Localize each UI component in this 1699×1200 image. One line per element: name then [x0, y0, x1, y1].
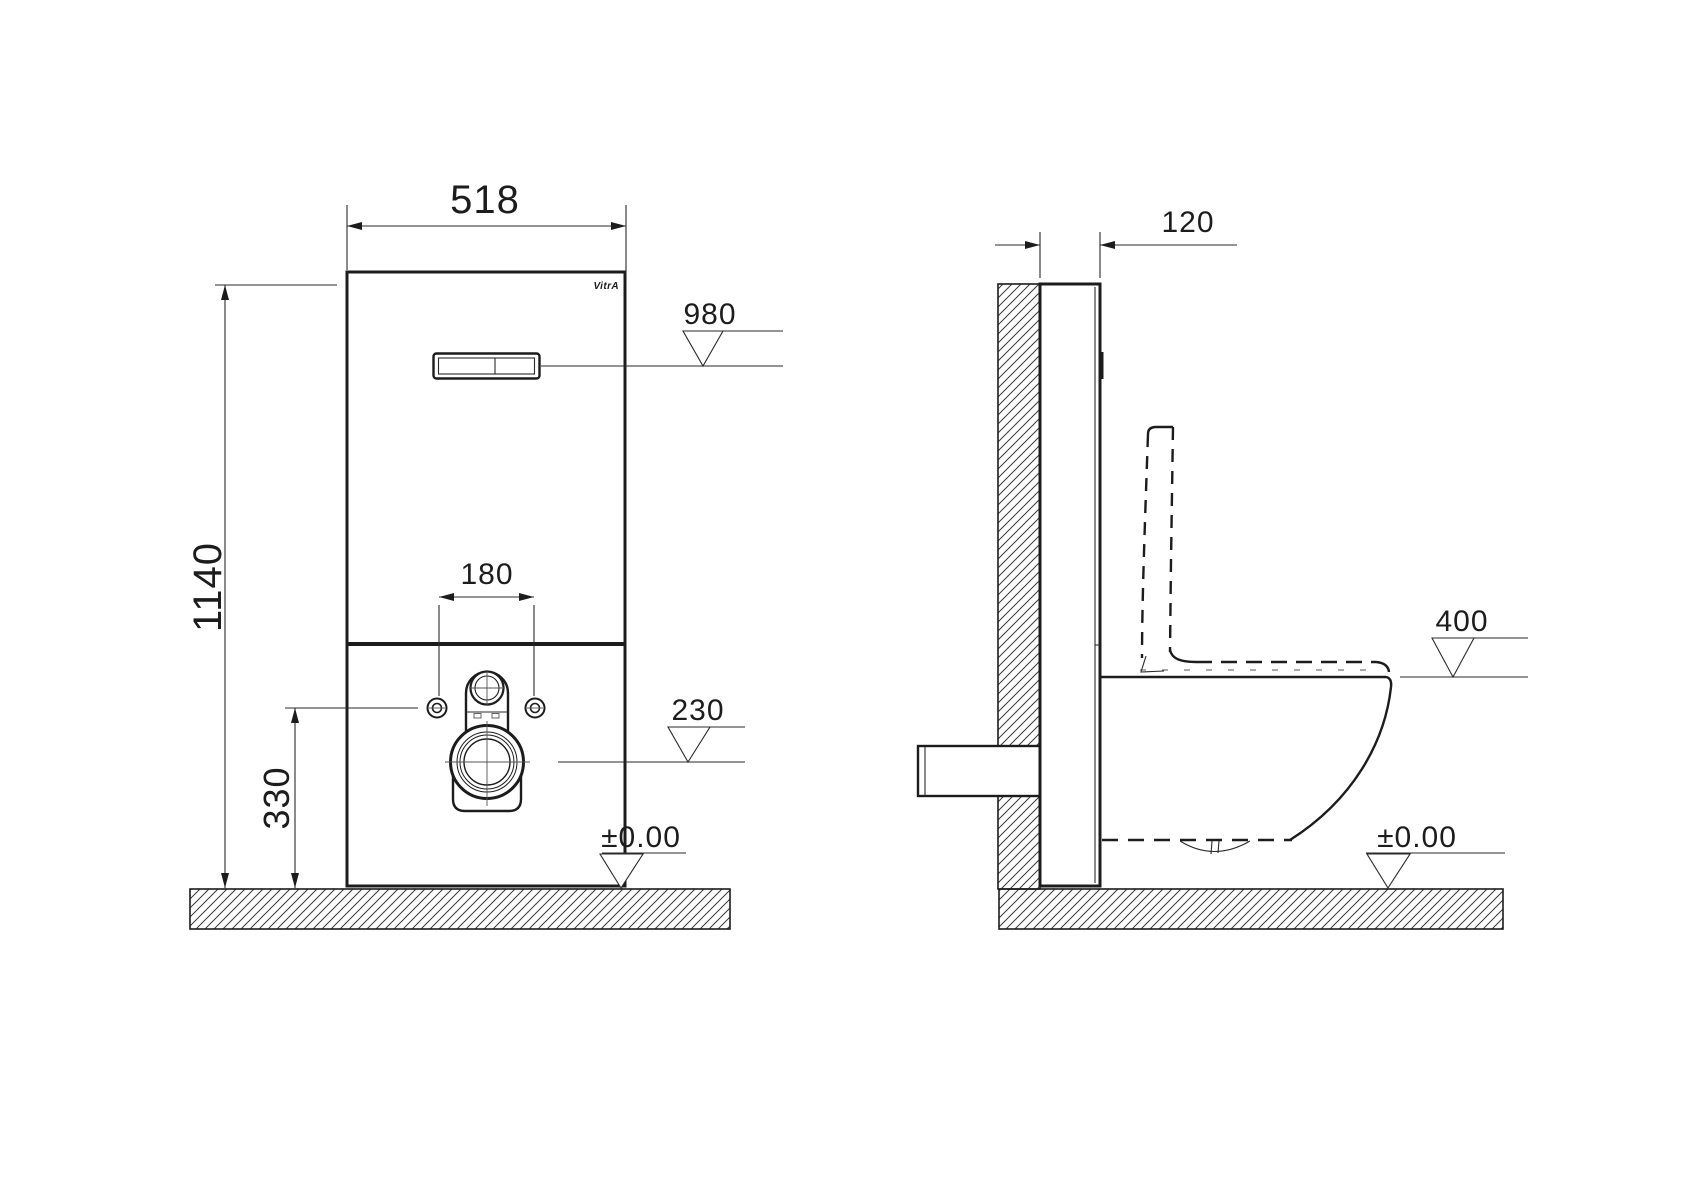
- trap-outline-arc: [1180, 841, 1250, 852]
- lid-top-edge: [1148, 427, 1173, 434]
- level-marker-zero-side: ±0.00: [1366, 821, 1505, 888]
- side-floor-level-label: ±0.00: [1377, 821, 1457, 854]
- mounting-bolt-right: [526, 699, 545, 718]
- front-floor: [190, 889, 730, 929]
- front-height-label: 1140: [186, 542, 230, 632]
- dim-module-depth: 120: [995, 206, 1237, 278]
- wall-section: [998, 284, 1040, 889]
- flush-plate: [434, 354, 540, 379]
- module-body: [1040, 284, 1100, 886]
- brand-logo: VitrA: [593, 281, 619, 292]
- side-view: 120 400 ±0.00: [918, 206, 1528, 929]
- bowl-rim-line: [1100, 677, 1391, 687]
- level-marker-400: 400: [1400, 605, 1528, 677]
- technical-drawing-page: VitrA: [0, 0, 1699, 1200]
- mounting-bolt-left: [428, 699, 447, 718]
- lid-front-hidden-line: [1170, 427, 1173, 652]
- bolt-height-label: 330: [256, 766, 297, 829]
- front-floor-hatch: [190, 889, 730, 929]
- module-depth-label: 120: [1161, 206, 1214, 239]
- bolt-spacing-label: 180: [460, 558, 513, 591]
- front-view: VitrA: [186, 178, 783, 929]
- front-floor-level-label: ±0.00: [601, 821, 681, 854]
- seat-front-edge: [1376, 662, 1389, 672]
- module-side-profile: [1040, 284, 1104, 886]
- toilet-bowl-profile: [1100, 427, 1391, 854]
- dim-front-width: 518: [347, 178, 626, 278]
- flush-height-label: 980: [683, 298, 736, 331]
- side-floor-hatch: [999, 889, 1503, 929]
- installation-drawing: VitrA: [0, 0, 1699, 1200]
- flush-plate-side-profile: [1100, 352, 1104, 379]
- front-width-label: 518: [450, 178, 520, 222]
- lid-back-hidden-line: [1142, 434, 1148, 658]
- outlet-height-label: 230: [671, 694, 724, 727]
- waste-pipe-bracket: [918, 746, 1040, 796]
- flush-plate-inner: [439, 358, 535, 374]
- bowl-front-curve: [1290, 687, 1391, 840]
- lid-hinge-curve: [1170, 650, 1196, 662]
- rim-height-label: 400: [1435, 605, 1488, 638]
